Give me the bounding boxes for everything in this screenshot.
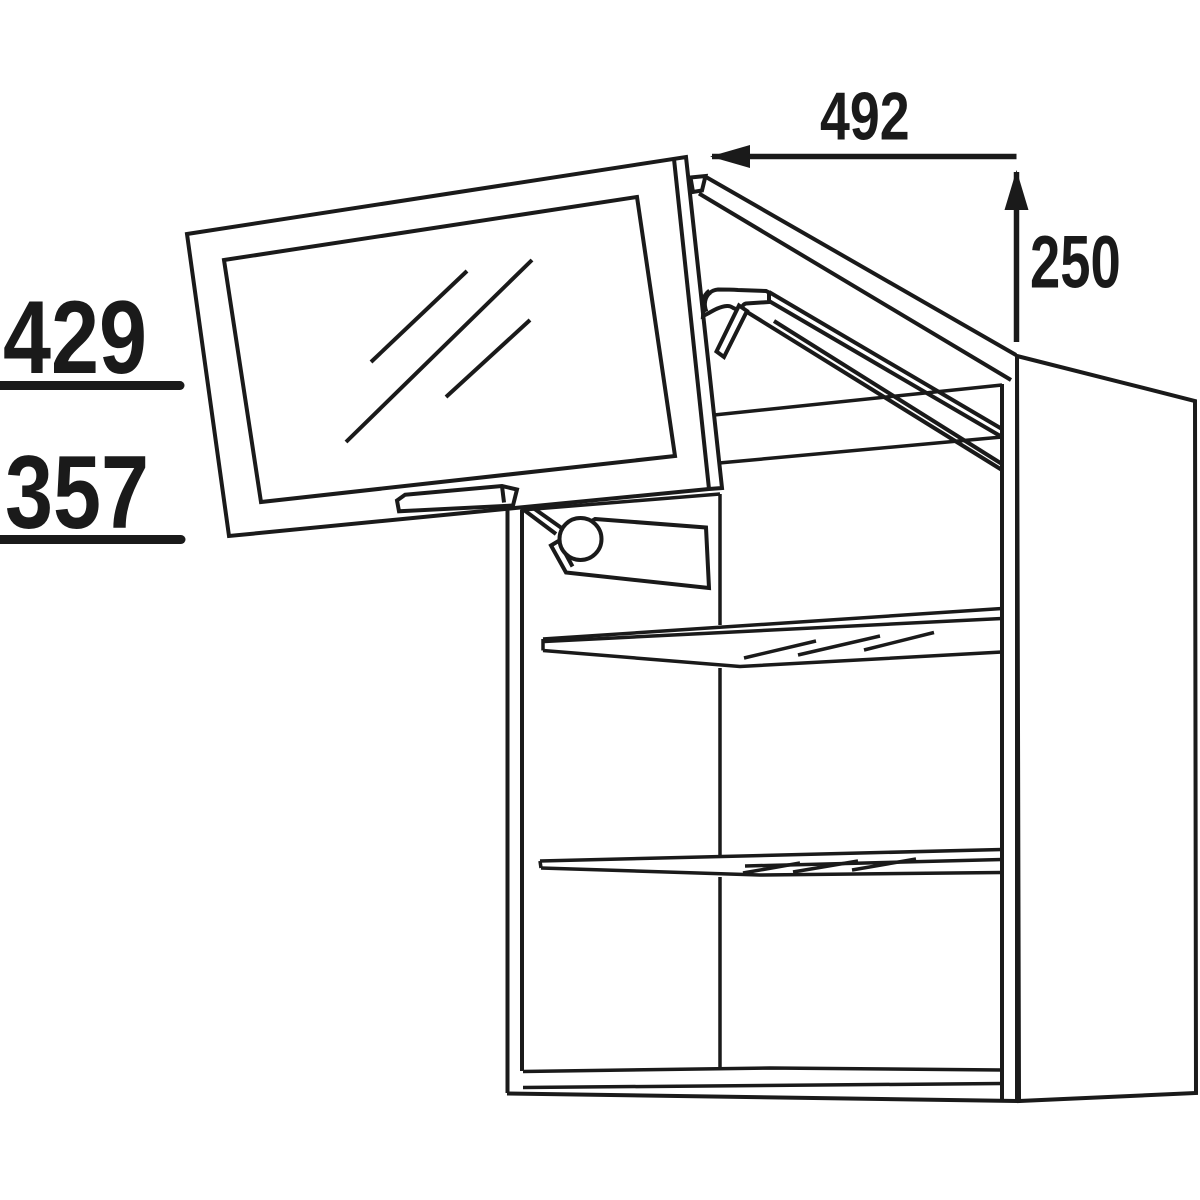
svg-text:429: 429 [3, 279, 147, 395]
svg-text:357: 357 [5, 434, 149, 550]
svg-text:250: 250 [1030, 220, 1121, 303]
svg-text:492: 492 [820, 78, 910, 153]
